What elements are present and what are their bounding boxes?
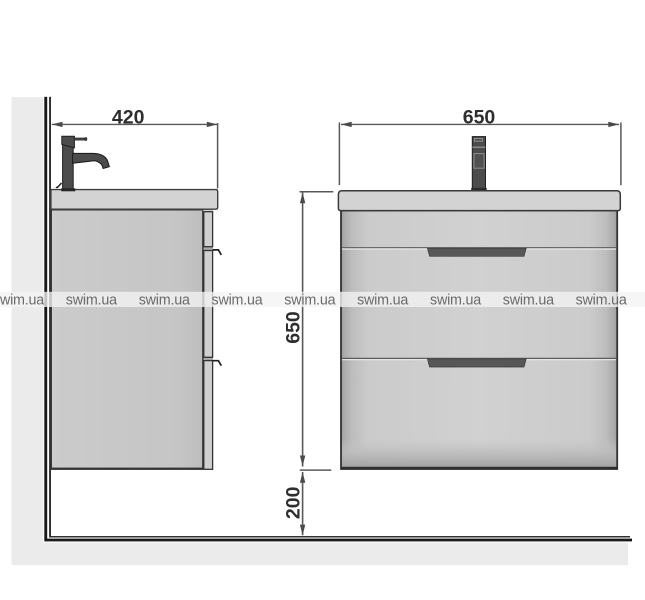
svg-text:650: 650 <box>283 311 305 344</box>
svg-text:swim.ua: swim.ua <box>576 292 627 308</box>
svg-text:swim.ua: swim.ua <box>357 292 408 308</box>
svg-text:swim.ua: swim.ua <box>430 292 481 308</box>
svg-text:650: 650 <box>463 106 496 128</box>
svg-text:swim.ua: swim.ua <box>139 292 190 308</box>
svg-text:swim.ua: swim.ua <box>66 292 117 308</box>
svg-text:swim.ua: swim.ua <box>503 292 554 308</box>
svg-text:420: 420 <box>112 106 145 128</box>
svg-text:swim.ua: swim.ua <box>284 292 335 308</box>
svg-text:swim.ua: swim.ua <box>0 292 44 308</box>
svg-text:swim.ua: swim.ua <box>212 292 263 308</box>
svg-text:200: 200 <box>283 486 305 519</box>
